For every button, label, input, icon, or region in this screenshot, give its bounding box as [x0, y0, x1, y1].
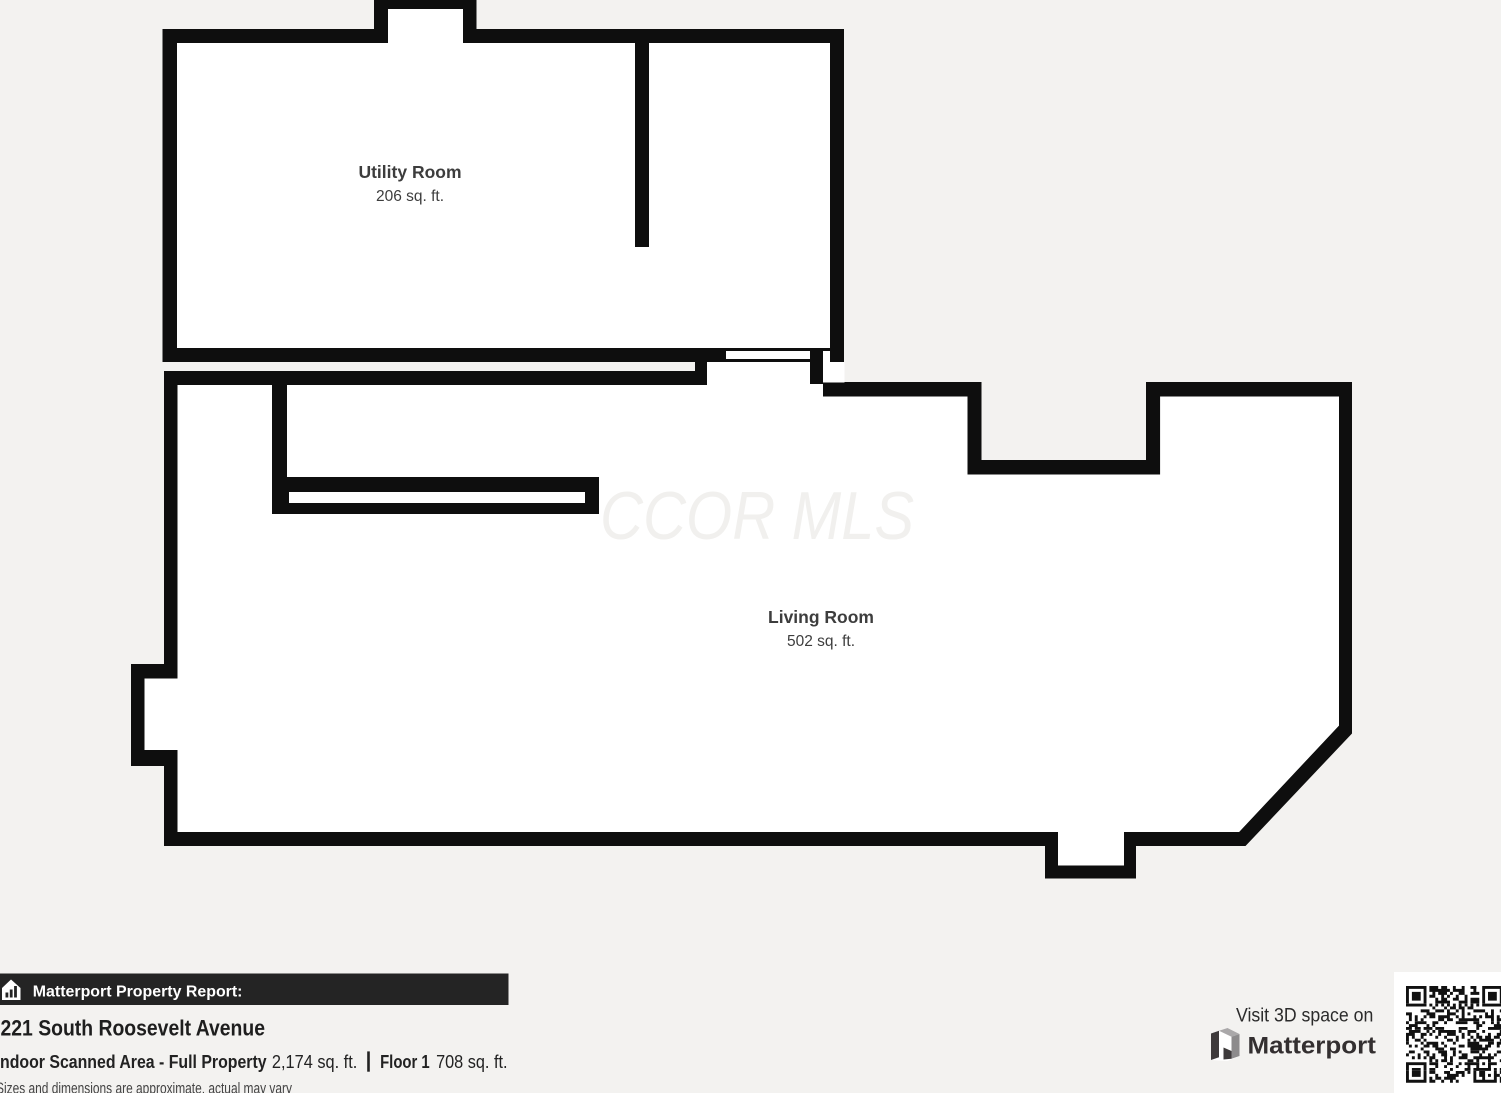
- svg-text:Floor 1: Floor 1: [380, 1051, 430, 1072]
- svg-text:2,174 sq. ft.: 2,174 sq. ft.: [272, 1051, 357, 1072]
- svg-text:502 sq. ft.: 502 sq. ft.: [787, 633, 855, 650]
- svg-text:221 South Roosevelt Avenue: 221 South Roosevelt Avenue: [1, 1015, 266, 1040]
- svg-text:Matterport: Matterport: [1248, 1033, 1376, 1060]
- svg-text:708 sq. ft.: 708 sq. ft.: [436, 1051, 507, 1072]
- svg-text:206 sq. ft.: 206 sq. ft.: [376, 188, 444, 205]
- svg-text:Matterport Property Report:: Matterport Property Report:: [33, 984, 243, 1001]
- svg-text:Visit 3D space on: Visit 3D space on: [1236, 1005, 1373, 1027]
- svg-text:Living Room: Living Room: [768, 607, 874, 627]
- svg-text:Utility Room: Utility Room: [358, 162, 461, 182]
- svg-text:ndoor Scanned Area - Full Prop: ndoor Scanned Area - Full Property: [0, 1051, 267, 1072]
- svg-text:Sizes and dimensions are appro: Sizes and dimensions are approximate, ac…: [0, 1080, 292, 1093]
- svg-text:CCOR MLS: CCOR MLS: [600, 478, 914, 554]
